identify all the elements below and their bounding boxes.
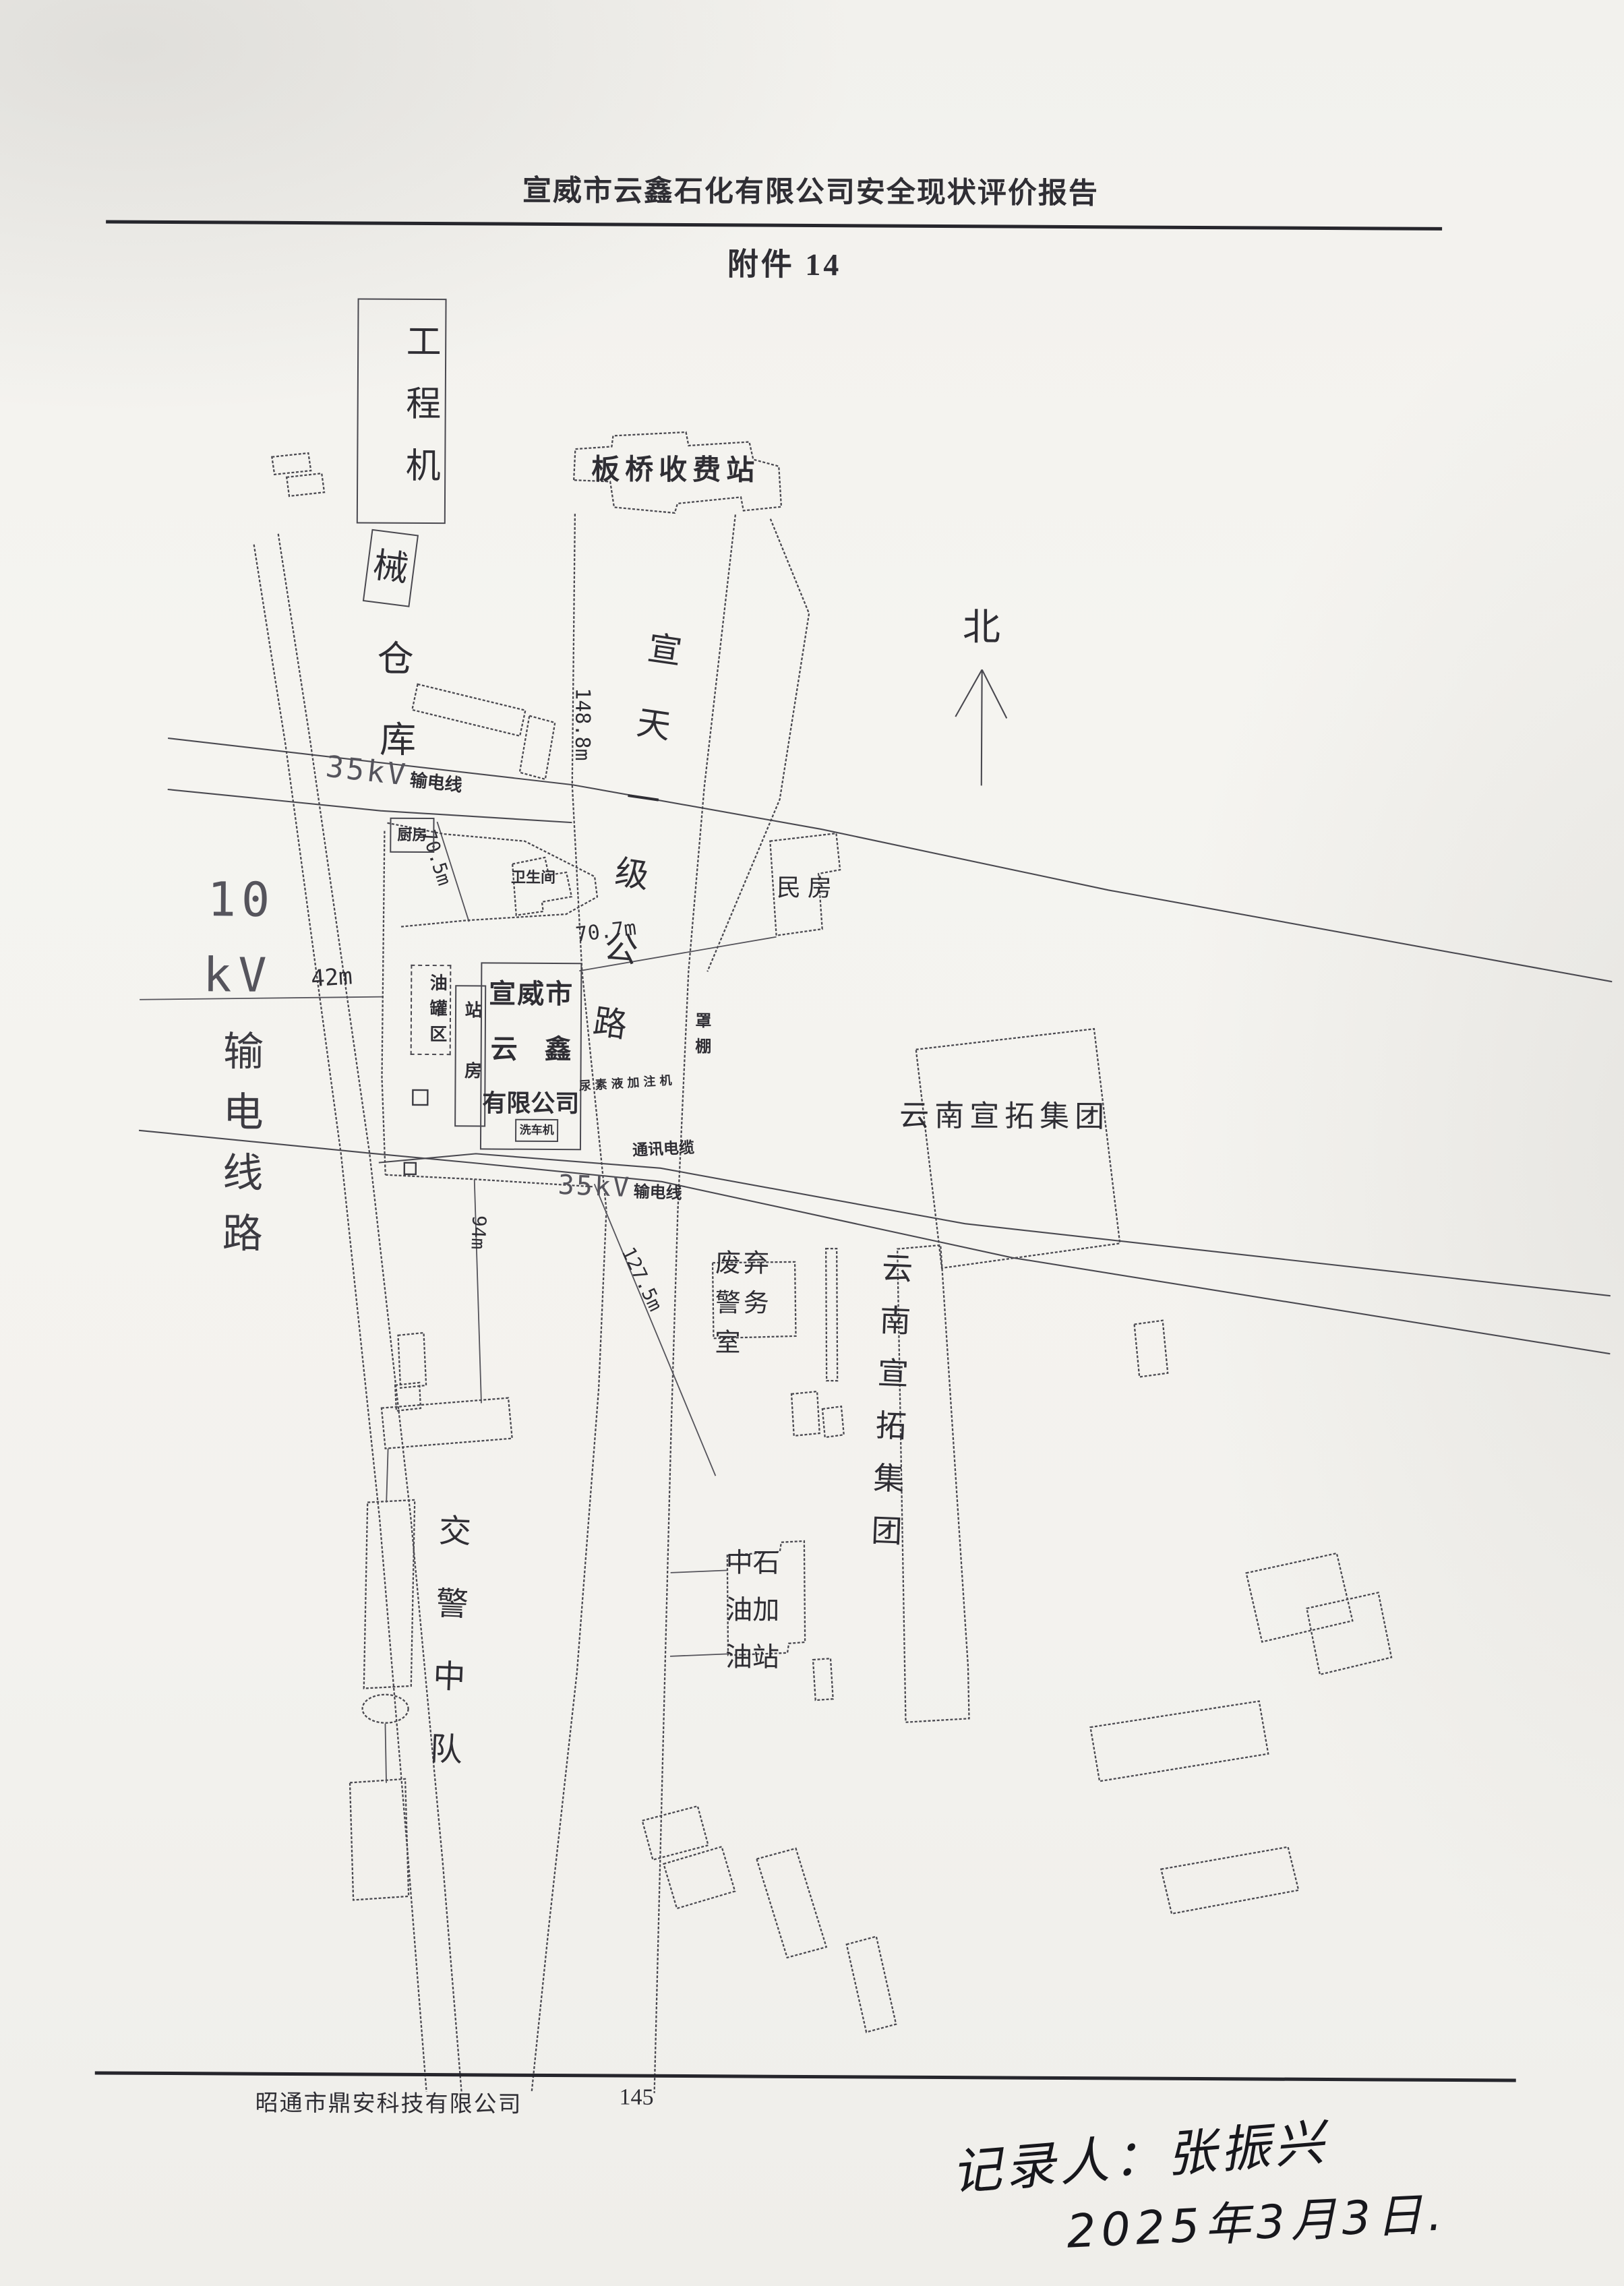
page-number: 145 [619,2085,653,2111]
comm-cable-label: 通讯电缆 [632,1135,694,1160]
police-tall-building [364,1500,415,1689]
footer-company: 昭通市鼎安科技有限公司 [255,2084,522,2119]
southeast-building-2 [1161,1846,1299,1915]
east-small-building [1134,1321,1168,1377]
power-35kv-south-text: 输电线 [633,1183,682,1203]
measure-line-127-5m [593,1184,717,1476]
police-main-building [382,1397,512,1449]
cnpc-gas-station-label: 中石油加油站 [725,1539,784,1681]
tank-symbol-1 [413,1090,427,1105]
north-label: 北 [963,597,1000,651]
small-building-b [822,1406,844,1437]
restroom-label: 卫生间 [511,866,555,887]
machinery-warehouse-ku-label: 库 [380,710,416,763]
measure-94m-label: 94m [467,1215,490,1250]
power-35kv-south-label: 35kV 输电线 [558,1170,683,1205]
police-south-building [349,1778,409,1900]
tank-area-label: 油罐区 [411,965,452,1055]
machinery-warehouse-box2-label: 械 [363,529,419,607]
cnpc-driveway-2 [670,1654,728,1656]
toll-station-label: 板桥收费站 [591,446,760,488]
police-small-north [398,1333,426,1388]
warehouse-building-2 [520,716,555,779]
power-10kv-text: 输电线路 [210,1029,270,1272]
narrow-tall-building [825,1249,838,1381]
police-path [385,1449,388,1783]
power-line-35kv-north-b [167,789,572,822]
xuantuo-large-building [915,1028,1121,1269]
power-35kv-text: 输电线 [409,770,463,795]
abandoned-police-office-label: 废弃警务室 [715,1244,772,1363]
machinery-warehouse-box-label: 工程机 [357,298,447,524]
east-building-1 [1246,1553,1353,1642]
tank-symbol-2 [404,1163,416,1174]
south-building-4 [846,1936,897,2032]
cnpc-driveway-1 [671,1570,727,1573]
warehouse-building-1 [412,684,525,736]
power-10kv-value2: kV [203,947,274,1003]
southeast-building-1 [1090,1700,1269,1782]
xuantuo-group-h-label: 云南宣拓集团 [899,1091,1110,1136]
old-road-line [707,518,810,972]
power-10kv-value1: 10 [208,872,276,928]
compound-west-fence [382,831,388,1175]
residence-label: 民房 [777,868,839,903]
car-washer-label: 洗车机 [515,1119,558,1142]
south-building-2 [663,1846,735,1909]
small-structure-1 [272,453,311,475]
south-building-3 [756,1848,827,1958]
north-arrow [955,669,1007,785]
small-building-a [791,1391,820,1436]
east-building-2 [1306,1592,1392,1675]
company-name-line1: 宣威市 [482,971,580,1011]
scanned-report-page: 宣威市云鑫石化有限公司安全现状评价报告 附件 14 [0,0,1624,2286]
police-round-structure [362,1695,408,1723]
measure-line-94m [473,1179,483,1403]
scan-content: 宣威市云鑫石化有限公司安全现状评价报告 附件 14 [0,0,1624,2286]
company-name-line3: 有限公司 [481,1083,580,1119]
cnpc-small-building [813,1658,833,1700]
south-building-1 [642,1806,708,1861]
power-35kv-south-value: 35kV [558,1170,632,1203]
machinery-warehouse-cang-label: 仓 [378,629,414,682]
small-structure-2 [287,473,324,496]
measure-42m-label: 42m [310,963,353,992]
measure-148-8m-label: 148.8m [570,688,595,761]
kitchen-label: 厨房 [390,818,434,853]
canopy-label: 罩棚 [690,1012,713,1063]
company-name-line2: 云 鑫 [482,1027,580,1066]
